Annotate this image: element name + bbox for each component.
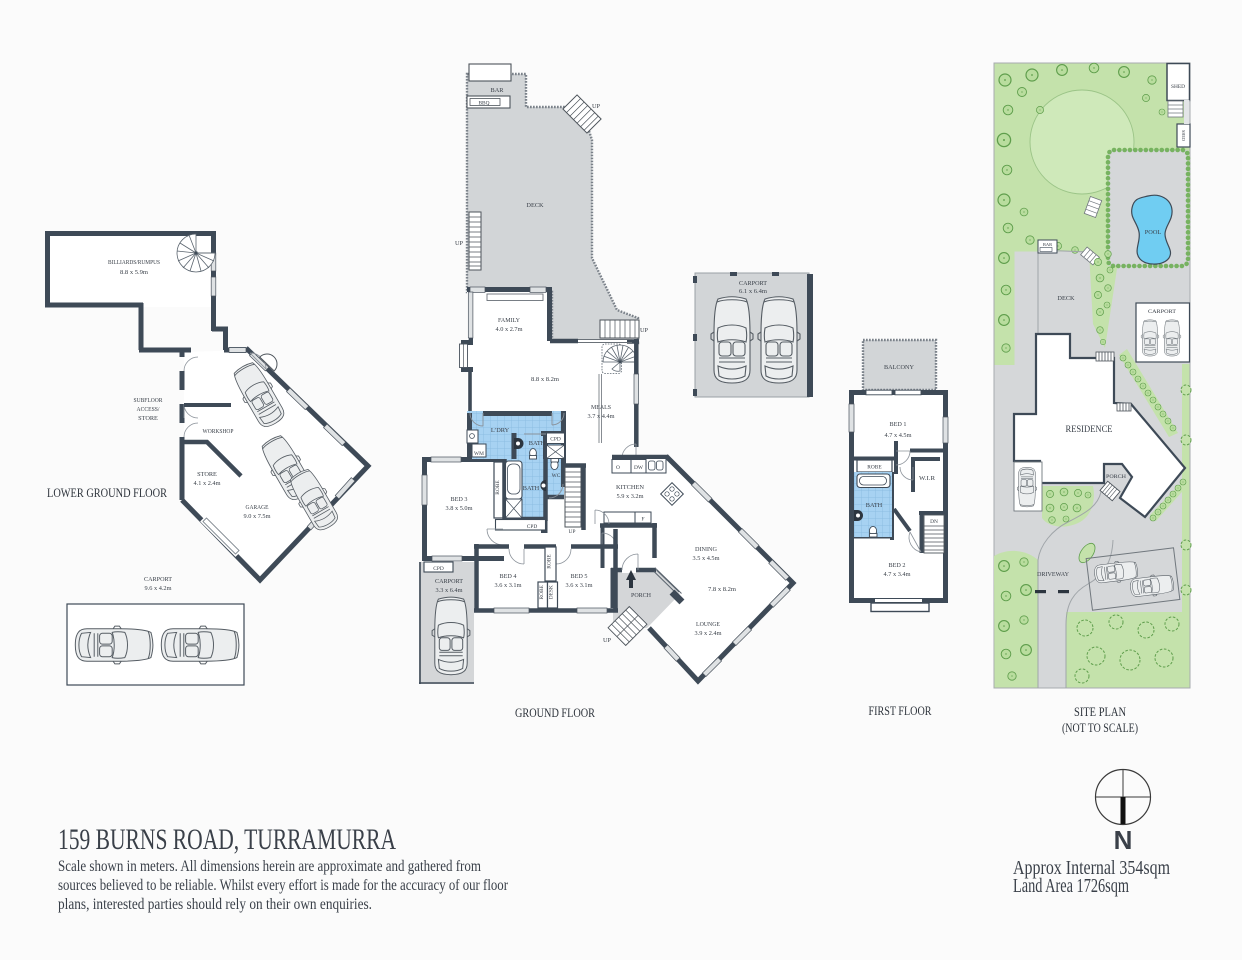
svg-text:WC: WC [552,473,561,479]
svg-text:DECK: DECK [1057,295,1075,302]
svg-text:4.0 x 2.7m: 4.0 x 2.7m [496,327,523,333]
svg-text:ROBE: ROBE [547,554,553,569]
svg-text:3.9 x 2.4m: 3.9 x 2.4m [695,631,722,637]
svg-text:SITE PLAN: SITE PLAN [1074,705,1126,719]
svg-text:LOWER GROUND FLOOR: LOWER GROUND FLOOR [47,486,168,500]
svg-text:PORCH: PORCH [631,592,651,599]
svg-text:5.9 x 3.2m: 5.9 x 3.2m [617,494,644,500]
svg-text:159 BURNS ROAD, TURRAMURRA: 159 BURNS ROAD, TURRAMURRA [58,823,396,856]
svg-text:4.1 x 2.4m: 4.1 x 2.4m [194,481,221,487]
svg-text:9.6 x 4.2m: 9.6 x 4.2m [145,586,172,592]
svg-text:UP: UP [569,529,576,535]
svg-text:3.3 x 6.4m: 3.3 x 6.4m [436,588,463,594]
svg-text:Scale shown in meters. All dim: Scale shown in meters. All dimensions he… [58,858,481,875]
svg-text:6.1 x 6.4m: 6.1 x 6.4m [739,289,767,295]
svg-text:DINING: DINING [695,546,717,553]
svg-text:Land Area 1726sqm: Land Area 1726sqm [1013,875,1129,897]
svg-text:4.7 x 3.4m: 4.7 x 3.4m [884,572,911,578]
svg-text:9.0 x 7.5m: 9.0 x 7.5m [244,514,271,520]
svg-text:ROBE: ROBE [867,465,882,471]
svg-text:BAR: BAR [491,87,505,94]
svg-text:BALCONY: BALCONY [884,364,914,371]
svg-text:8.8 x 5.9m: 8.8 x 5.9m [120,270,148,276]
svg-text:UP: UP [603,637,612,644]
svg-text:3.6 x 3.1m: 3.6 x 3.1m [495,583,522,589]
svg-text:ACCESS/: ACCESS/ [137,406,160,413]
svg-text:FIRST FLOOR: FIRST FLOOR [869,704,933,718]
svg-text:BILLIARDS/RUMPUS: BILLIARDS/RUMPUS [108,259,160,266]
svg-text:plans, interested parties shou: plans, interested parties should rely on… [58,896,372,913]
svg-text:DN: DN [930,519,938,525]
svg-text:3.6 x 3.1m: 3.6 x 3.1m [566,583,593,589]
svg-text:BED 3: BED 3 [451,496,468,503]
svg-text:L’DRY: L’DRY [491,427,510,434]
svg-text:POOL: POOL [1145,229,1162,236]
svg-text:STORE: STORE [197,471,217,478]
svg-text:GARAGE: GARAGE [246,504,269,511]
svg-text:CPD: CPD [527,524,538,530]
svg-text:F: F [642,517,645,523]
svg-text:CARPORT: CARPORT [144,576,172,583]
svg-text:BED 1: BED 1 [890,421,907,428]
svg-text:UP: UP [592,103,601,110]
svg-text:sources believed to be reliabl: sources believed to be reliable. Whilst … [58,877,509,894]
svg-text:3.7 x 4.4m: 3.7 x 4.4m [588,414,615,420]
svg-text:PORCH: PORCH [1106,474,1126,480]
svg-text:CARPORT: CARPORT [739,280,767,287]
svg-text:BED 5: BED 5 [571,573,588,580]
svg-text:DESK: DESK [549,585,555,599]
svg-text:ROBE: ROBE [539,584,545,599]
svg-text:W.I.R: W.I.R [919,475,936,482]
svg-text:CARPORT: CARPORT [435,578,463,585]
svg-text:KITCHEN: KITCHEN [616,484,644,491]
svg-text:DW: DW [634,465,644,471]
svg-text:BATH: BATH [529,440,546,447]
svg-text:BATH: BATH [523,485,540,492]
svg-text:SUBFLOOR: SUBFLOOR [134,397,164,404]
svg-text:3.5 x 4.5m: 3.5 x 4.5m [693,556,720,562]
svg-text:CPD: CPD [550,437,561,443]
svg-text:ROBE: ROBE [495,480,501,495]
svg-text:WORKSHOP: WORKSHOP [203,428,234,435]
svg-text:N: N [1114,825,1133,855]
svg-text:DRIVEWAY: DRIVEWAY [1037,571,1069,578]
svg-text:BED 4: BED 4 [500,573,518,580]
svg-text:UP: UP [455,240,464,247]
svg-text:CPD: CPD [433,566,444,572]
svg-text:WM: WM [474,451,484,457]
svg-text:3.8 x 5.0m: 3.8 x 5.0m [446,506,473,512]
svg-text:RESIDENCE: RESIDENCE [1066,425,1113,435]
svg-text:BBQ: BBQ [478,101,489,107]
svg-text:LOUNGE: LOUNGE [696,621,720,628]
svg-text:BAR: BAR [1043,242,1052,247]
svg-text:(NOT TO SCALE): (NOT TO SCALE) [1062,721,1138,735]
svg-text:STORE: STORE [138,415,158,422]
svg-text:CARPORT: CARPORT [1148,309,1177,315]
svg-text:MEALS: MEALS [591,404,611,411]
svg-text:8.8 x 8.2m: 8.8 x 8.2m [531,376,559,383]
svg-text:SHED: SHED [1181,130,1186,141]
svg-text:GROUND FLOOR: GROUND FLOOR [515,706,596,720]
svg-text:BATH: BATH [866,502,883,509]
svg-text:4.7 x 4.5m: 4.7 x 4.5m [885,433,912,439]
svg-text:O: O [616,465,620,471]
svg-text:SHED: SHED [1171,84,1185,90]
svg-text:DECK: DECK [526,202,544,209]
svg-text:7.8 x 8.2m: 7.8 x 8.2m [708,586,736,593]
svg-text:BED 2: BED 2 [889,562,906,569]
svg-text:UP: UP [640,327,649,334]
svg-text:FAMILY: FAMILY [498,317,520,324]
